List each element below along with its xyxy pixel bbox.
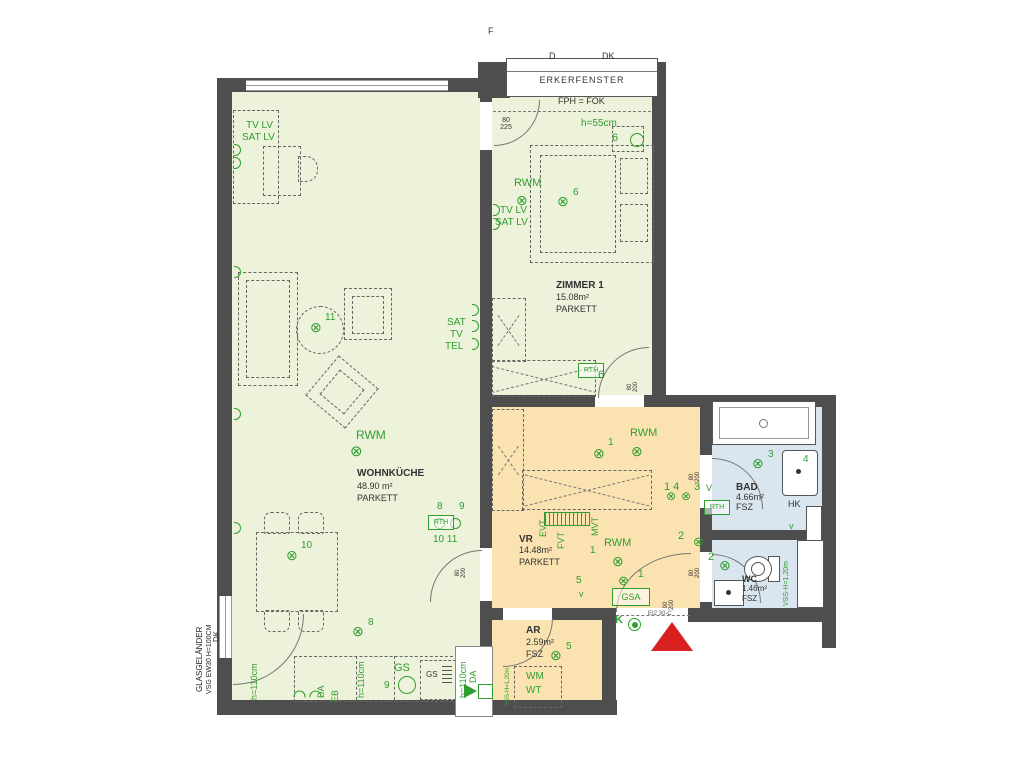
mvt-label: MVT (591, 517, 600, 536)
dining-chair (298, 512, 324, 534)
gsa-label: GSA (621, 592, 640, 602)
room-label-wohnkueche-floor: PARKETT (357, 494, 398, 503)
num-light: 6 (573, 188, 579, 199)
num-door-bad2: 3 (694, 482, 700, 494)
counter-height: h=110cm (250, 663, 259, 700)
washbasin-bad (782, 450, 818, 496)
glass-railing-label: GLASGELÄNDER (196, 627, 204, 692)
room-label-zimmer1-name: ZIMMER 1 (556, 281, 604, 292)
rth-box-living: RTH (428, 515, 454, 530)
room-label-zimmer1-area: 15.08m² (556, 293, 589, 302)
wall-vr-ar-a (492, 608, 503, 620)
door-dim-zimmer: 80 200 (627, 382, 640, 392)
tvlv-living: TV LV (246, 121, 273, 132)
num-light: 1 (608, 438, 614, 449)
num-door-wc: 2 (678, 531, 684, 543)
room-label-vr-floor: PARKETT (519, 558, 560, 567)
num-switch: 9 (459, 502, 465, 513)
washbasin-wc (714, 580, 744, 606)
light-symbol: ⊗ (693, 535, 704, 549)
kitchen-da-label: DA (317, 685, 326, 698)
door-dim-entrance: 90 200 (663, 600, 676, 610)
wall-right-zimmer (652, 95, 666, 402)
wall-entry-vertical (602, 608, 616, 715)
nightstand (620, 158, 648, 194)
keypoint-icon (628, 618, 641, 631)
dining-chair (264, 512, 290, 534)
satlv-zimmer: SAT LV (495, 218, 528, 229)
door-dim-living-vr: 80 200 (455, 568, 468, 578)
nightstand (620, 204, 648, 242)
wardrobe-zimmer-vertical (492, 298, 526, 362)
window-dk-vertical: DK (213, 631, 221, 642)
rth-label: RTH (434, 519, 448, 526)
desk (263, 146, 301, 196)
entrance-marker-icon (651, 622, 693, 651)
num-light: 8 (368, 618, 374, 629)
washer-label: WM (526, 672, 544, 683)
window-top-band (246, 80, 448, 91)
armchair-rotated-seat (319, 369, 364, 414)
num-door-zimmer: 6 (598, 370, 604, 382)
dryer-label: WT (526, 686, 542, 697)
door-dim-wc: 80 200 (689, 568, 702, 578)
room-label-wc-floor: FSZ (742, 595, 757, 603)
vent-box-icon (478, 684, 493, 699)
room-label-vr-area: 14.48m² (519, 546, 552, 555)
light-symbol: ⊗ (719, 558, 731, 573)
num-light: 11 (325, 313, 335, 324)
window-left-band (219, 596, 232, 658)
wall-vr-bad-c (700, 602, 712, 608)
dining-chair (264, 610, 290, 632)
num-light: 10 (301, 541, 312, 552)
room-label-bad-floor: FSZ (736, 503, 753, 512)
num-light: 1 (638, 570, 644, 581)
shaft-wc (797, 540, 824, 608)
num-light: 1 (590, 546, 596, 557)
h55-label: h=55cm (581, 119, 617, 130)
rwm-vr-bottom: RWM (604, 538, 631, 550)
v-mark: v (789, 522, 794, 531)
num-sink: 9 (384, 681, 390, 692)
num-window: 6 (612, 133, 618, 145)
gs-dishwasher-label: GS (426, 671, 438, 679)
wardrobe-vr-horizontal (522, 470, 652, 510)
rwm-living: RWM (356, 429, 386, 442)
rth-label: RTH (710, 504, 724, 511)
bay-window-label: ERKERFENSTER (507, 76, 657, 85)
satlv-living: SAT LV (242, 133, 275, 144)
rth-box-vr: RTH (704, 500, 730, 515)
dining-chair (298, 610, 324, 632)
light-symbol: ⊗ (550, 648, 562, 663)
window-mark-d: D (549, 52, 556, 61)
gsa-box: GSA (612, 588, 650, 606)
keypoint-label: K (615, 615, 623, 627)
rwm-zimmer: RWM (514, 178, 541, 190)
bay-window: ERKERFENSTER (506, 58, 658, 97)
room-label-vr-name: VR (519, 535, 533, 546)
window-mark-dk: DK (602, 52, 615, 61)
light-symbol: ⊗ (593, 446, 605, 461)
vent-grille (544, 512, 590, 526)
tel-mid: TEL (445, 342, 463, 353)
num-light: 2 (708, 552, 714, 564)
sink-icon (398, 676, 416, 694)
fvt-label: FVT (557, 532, 566, 549)
num-light: 3 (768, 450, 774, 461)
entrance-door-class: EI2 30-C (648, 611, 672, 617)
light-symbol: ⊗ (612, 554, 624, 569)
rwm-vr-top: RWM (630, 428, 657, 440)
vss-label-ar: VSS-H=1,20m (505, 667, 511, 706)
light-symbol: ⊗ (631, 444, 643, 459)
door-dim-80-225: 80 225 (495, 117, 517, 132)
num-light: 5 (566, 642, 572, 653)
armchair-seat (352, 296, 384, 334)
wall-partition-b (480, 150, 492, 548)
dining-table (256, 532, 338, 612)
light-symbol: ⊗ (618, 574, 629, 588)
floor-plan: ERKERFENSTER (0, 0, 1024, 768)
wall-wc-bottom (688, 608, 836, 622)
radiator-label: HK (788, 500, 801, 509)
bed (540, 155, 616, 253)
door-dim-bad: 80 200 (689, 472, 702, 482)
bathtub (712, 401, 816, 445)
rth-label: RTH (584, 367, 598, 374)
num-basin: 4 (803, 455, 809, 466)
num-switch: 10 11 (433, 535, 457, 546)
light-symbol: ⊗ (557, 194, 569, 209)
num-switch: 8 (437, 502, 443, 513)
vss-label-wc: VSS-H=1,20m (783, 561, 790, 606)
room-label-wc-area: 1.46m² (742, 585, 767, 593)
v-mark: v (579, 590, 584, 599)
sofa-seat (246, 280, 290, 378)
light-symbol: ⊗ (350, 444, 363, 460)
room-label-ar-name: AR (526, 626, 540, 637)
light-symbol: ⊗ (681, 490, 691, 503)
light-symbol: ⊗ (666, 490, 676, 503)
dishwasher-rack-lines (442, 666, 452, 684)
room-label-wohnkueche-area: 48.90 m² (357, 482, 393, 491)
light-symbol: ⊗ (286, 548, 298, 563)
tv-mid: TV (450, 330, 463, 341)
tvlv-zimmer: TV LV (500, 206, 527, 217)
fph-fok-label: FPH = FOK (558, 97, 605, 106)
room-label-zimmer1-floor: PARKETT (556, 305, 597, 314)
v-mark: V (706, 484, 712, 493)
light-symbol: ⊗ (752, 456, 764, 471)
evt-label: EVT (539, 519, 548, 537)
room-label-ar-floor: FSZ (526, 650, 543, 659)
wall-partition-a (480, 92, 492, 102)
counter-height: h=110cm (357, 661, 366, 698)
room-label-wohnkueche-name: WOHNKÜCHE (357, 469, 424, 480)
facade-mark: F (488, 27, 494, 36)
light-symbol: ⊗ (352, 624, 364, 639)
wardrobe-vr-vertical (492, 409, 524, 511)
kitchen-eb-label: EB (331, 690, 340, 702)
sat-mid: SAT (447, 318, 466, 329)
vent-da-label: DA (469, 670, 478, 683)
wall-vr-ar-b (552, 608, 615, 620)
gs-sink-label: GS (394, 663, 410, 675)
num-switch: 5 (576, 576, 582, 587)
light-symbol: ⊗ (310, 320, 322, 335)
socket-icon (294, 691, 306, 698)
wall-vr-bad-a (700, 407, 712, 455)
window-vent-icon (630, 133, 644, 147)
